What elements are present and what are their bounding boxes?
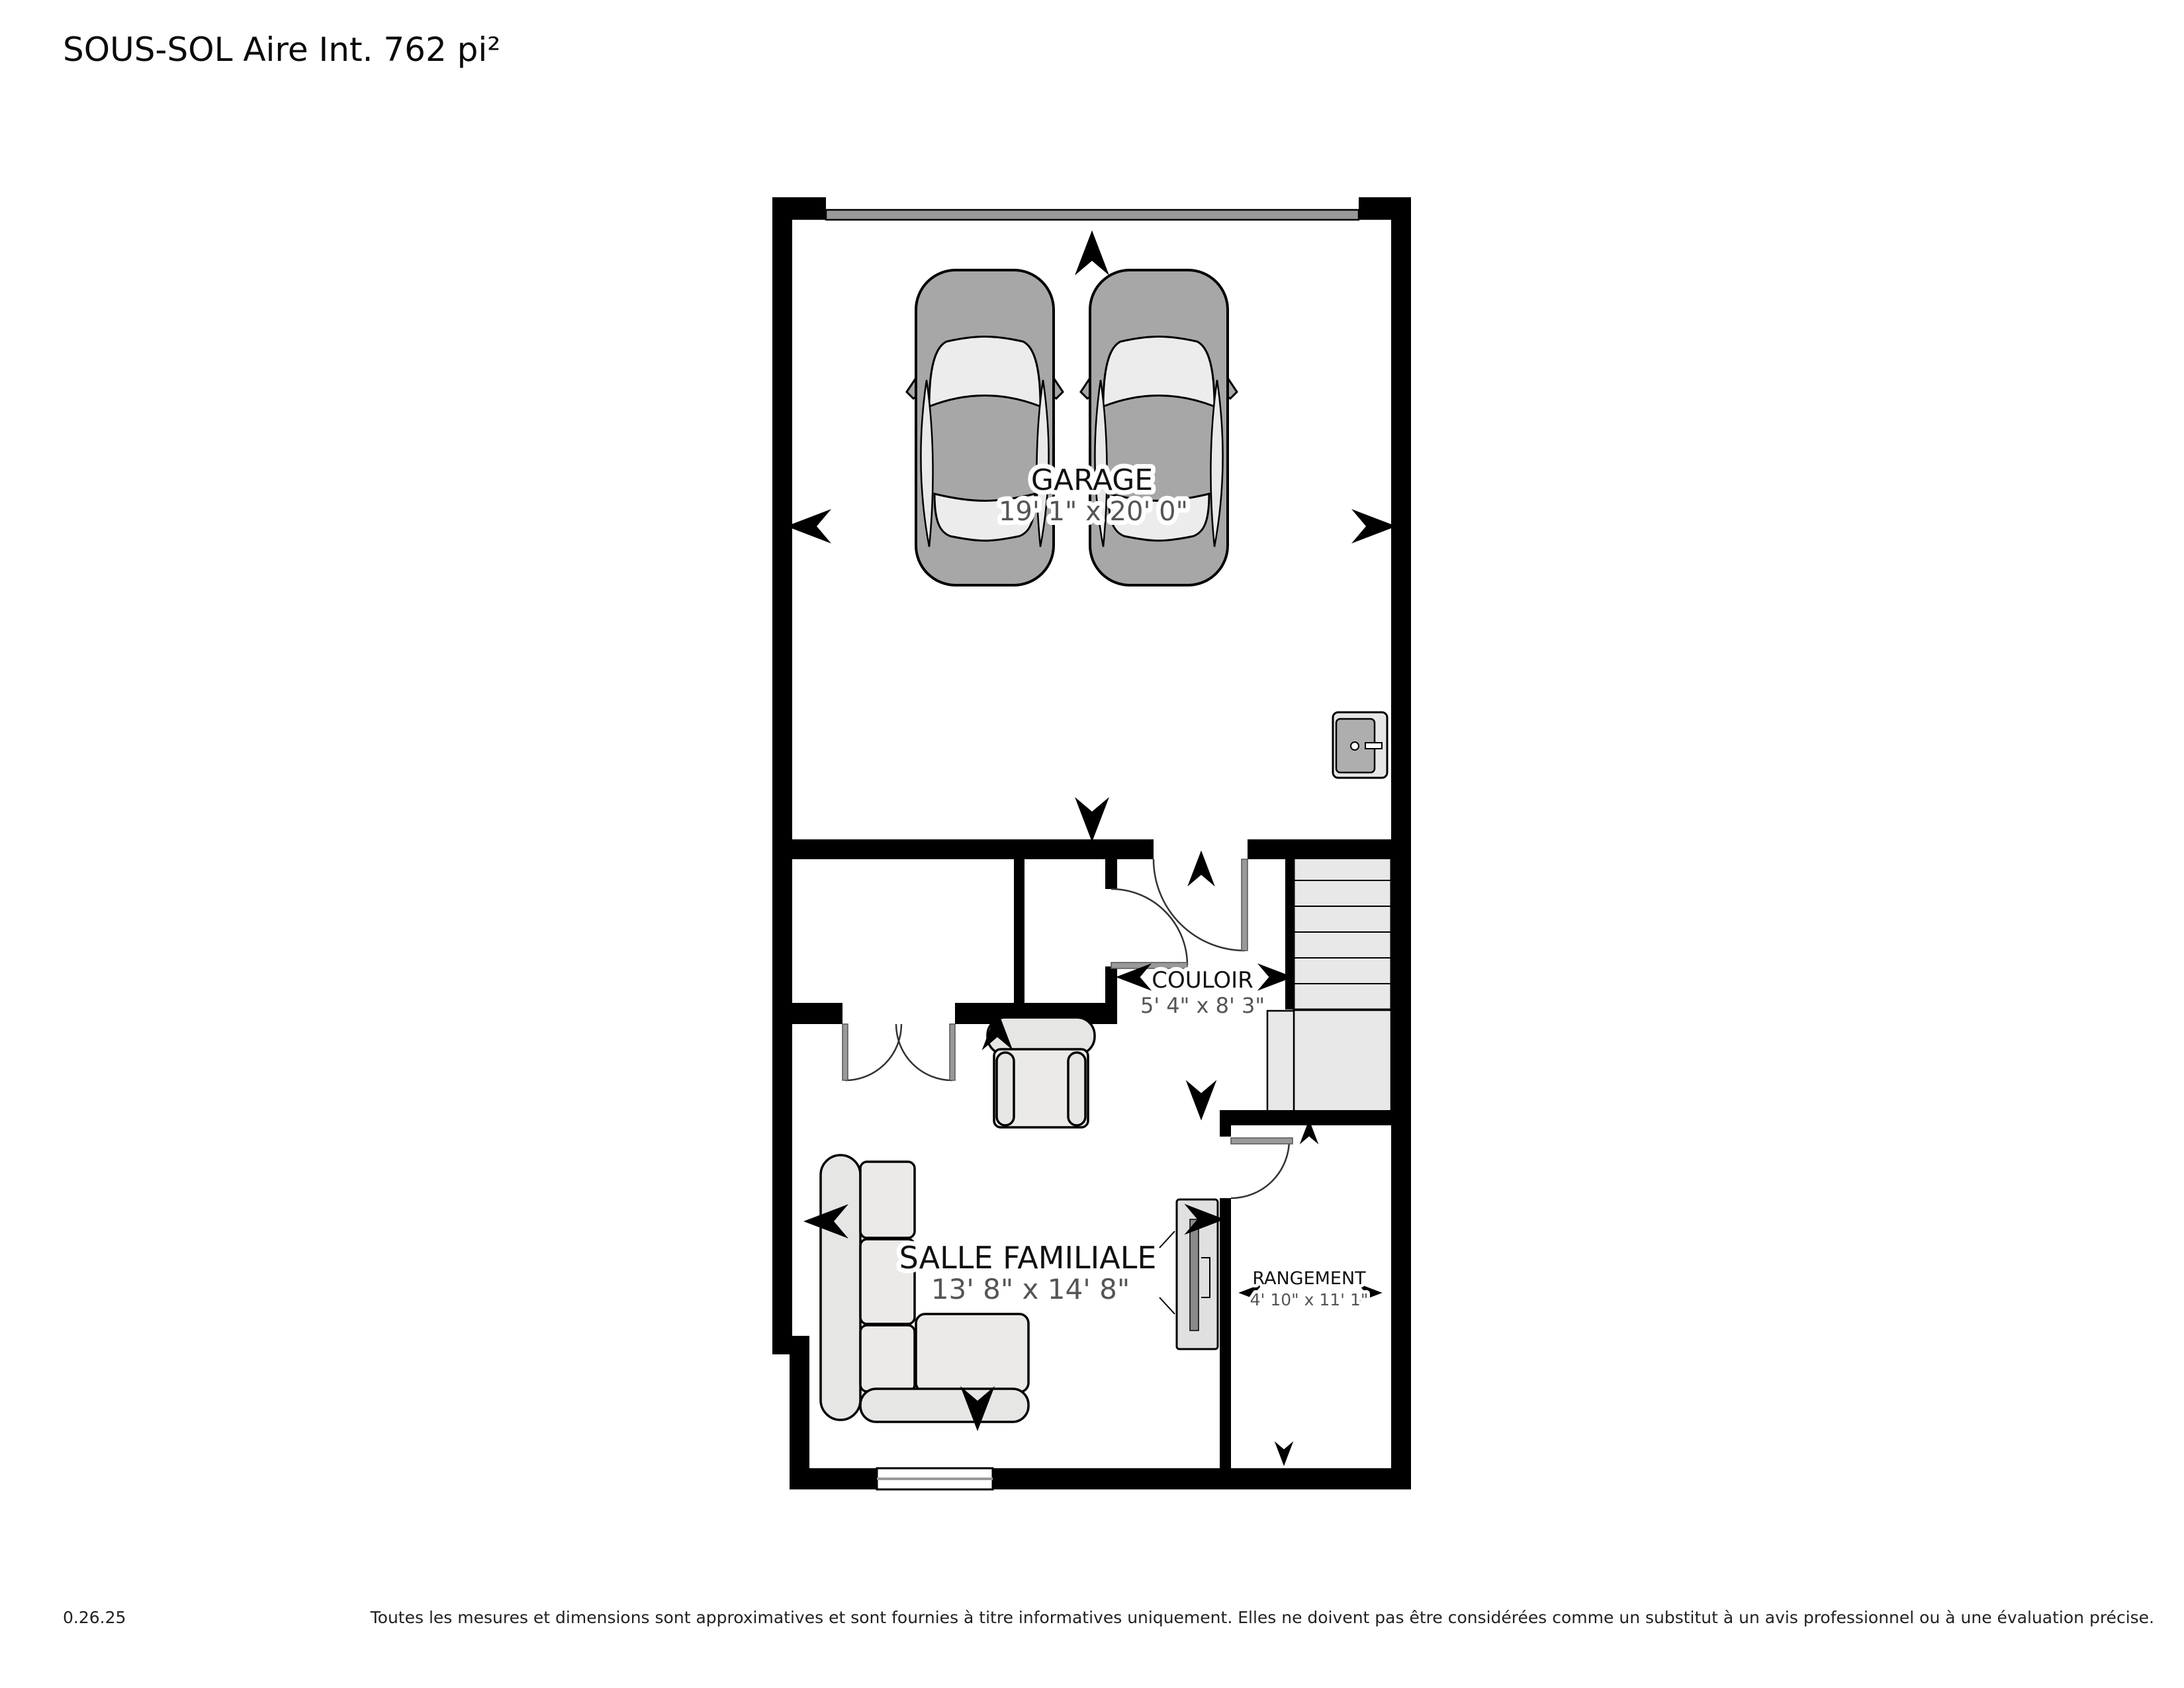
- salle-familiale-label: SALLE FAMILIALE: [899, 1240, 1157, 1276]
- door-leaf: [1242, 859, 1248, 951]
- arrow-up-icon: [1187, 851, 1215, 886]
- page-title: SOUS-SOL Aire Int. 762 pi²: [63, 30, 500, 69]
- car-icon: [1081, 270, 1237, 585]
- stairs-landing: [1294, 1010, 1391, 1114]
- floorplan-svg: SOUS-SOL Aire Int. 762 pi²: [0, 0, 2184, 1688]
- door-leaf: [1231, 1138, 1293, 1144]
- utility-panel-icon: [1333, 712, 1387, 778]
- garage-dims: 19' 1" x 20' 0": [999, 496, 1188, 527]
- arrow-down-icon: [1275, 1441, 1294, 1466]
- floorplan-page: SOUS-SOL Aire Int. 762 pi²: [0, 0, 2184, 1688]
- garage-door: [826, 210, 1359, 220]
- footer: 0.26.25 Toutes les mesures et dimensions…: [63, 1608, 2154, 1627]
- rangement-label: RANGEMENT: [1252, 1268, 1366, 1289]
- arrow-down-icon: [1075, 797, 1109, 842]
- arrow-right-icon: [1351, 509, 1396, 543]
- window: [877, 1468, 993, 1489]
- door-leaf: [950, 1024, 955, 1080]
- arrow-down-icon: [1186, 1080, 1217, 1120]
- rangement-dims: 4' 10" x 11' 1": [1250, 1290, 1369, 1309]
- car-icon: [907, 270, 1063, 585]
- salle-familiale-dims: 13' 8" x 14' 8": [931, 1273, 1130, 1305]
- couloir-label: COULOIR: [1152, 967, 1253, 994]
- couloir-dims: 5' 4" x 8' 3": [1140, 993, 1265, 1018]
- footer-version: 0.26.25: [63, 1608, 126, 1627]
- footer-disclaimer: Toutes les mesures et dimensions sont ap…: [370, 1608, 2154, 1627]
- door-leaf: [842, 1024, 848, 1080]
- garage-label: GARAGE: [1031, 463, 1153, 497]
- arrow-left-icon: [786, 509, 831, 543]
- arrow-up-icon: [1075, 230, 1109, 275]
